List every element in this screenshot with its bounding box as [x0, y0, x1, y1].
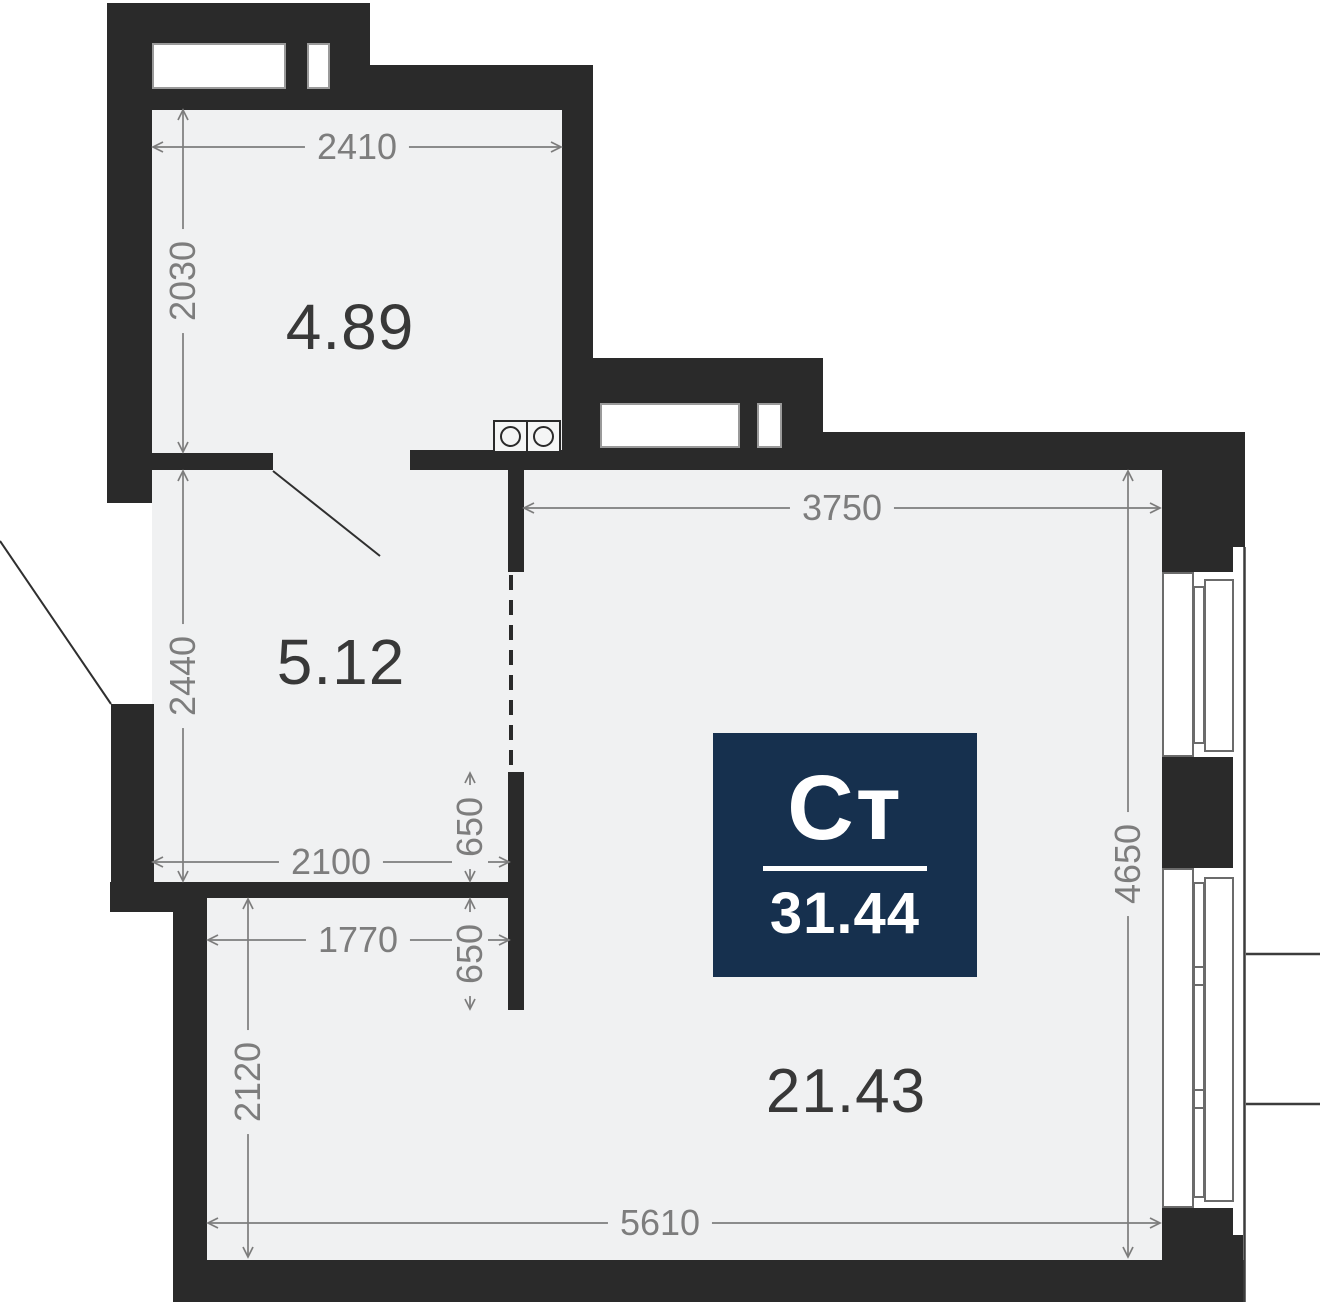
door-swing-line: [273, 471, 380, 556]
dim-label-bottom-left-height: 2120: [230, 1030, 266, 1134]
room-area-kitchen: 4.89: [286, 295, 415, 359]
burner-ring-icon: [500, 426, 521, 447]
badge-divider: [763, 866, 927, 871]
stove-burner-right: [526, 420, 561, 453]
dim-label-main-right-height: 4650: [1110, 812, 1146, 916]
room-area-hall: 5.12: [277, 630, 406, 694]
dim-label-kitchen-width: 2410: [305, 129, 409, 165]
burner-ring-icon: [533, 426, 554, 447]
room-area-living: 21.43: [766, 1061, 926, 1123]
apartment-total-area: 31.44: [770, 885, 920, 943]
apartment-type-label: Ст: [787, 767, 903, 850]
plan-cut-line: [0, 541, 111, 704]
stove-burner-left: [493, 420, 528, 453]
apartment-type-badge: Ст 31.44: [713, 733, 977, 977]
dim-label-opening-upper: 650: [452, 785, 488, 869]
dim-label-hall-width: 2100: [279, 844, 383, 880]
stove-icon: [493, 420, 558, 453]
dim-label-hall-height: 2440: [165, 624, 201, 728]
dim-label-kitchen-height: 2030: [165, 229, 201, 333]
floor-plan: 2410 2030 3750 4650 2440 2100 650 650 17…: [0, 0, 1320, 1302]
dim-label-bottom-width: 5610: [608, 1205, 712, 1241]
dim-label-main-top-width: 3750: [790, 490, 894, 526]
dim-label-bottom-left-width: 1770: [306, 922, 410, 958]
dim-label-opening-lower: 650: [452, 912, 488, 996]
